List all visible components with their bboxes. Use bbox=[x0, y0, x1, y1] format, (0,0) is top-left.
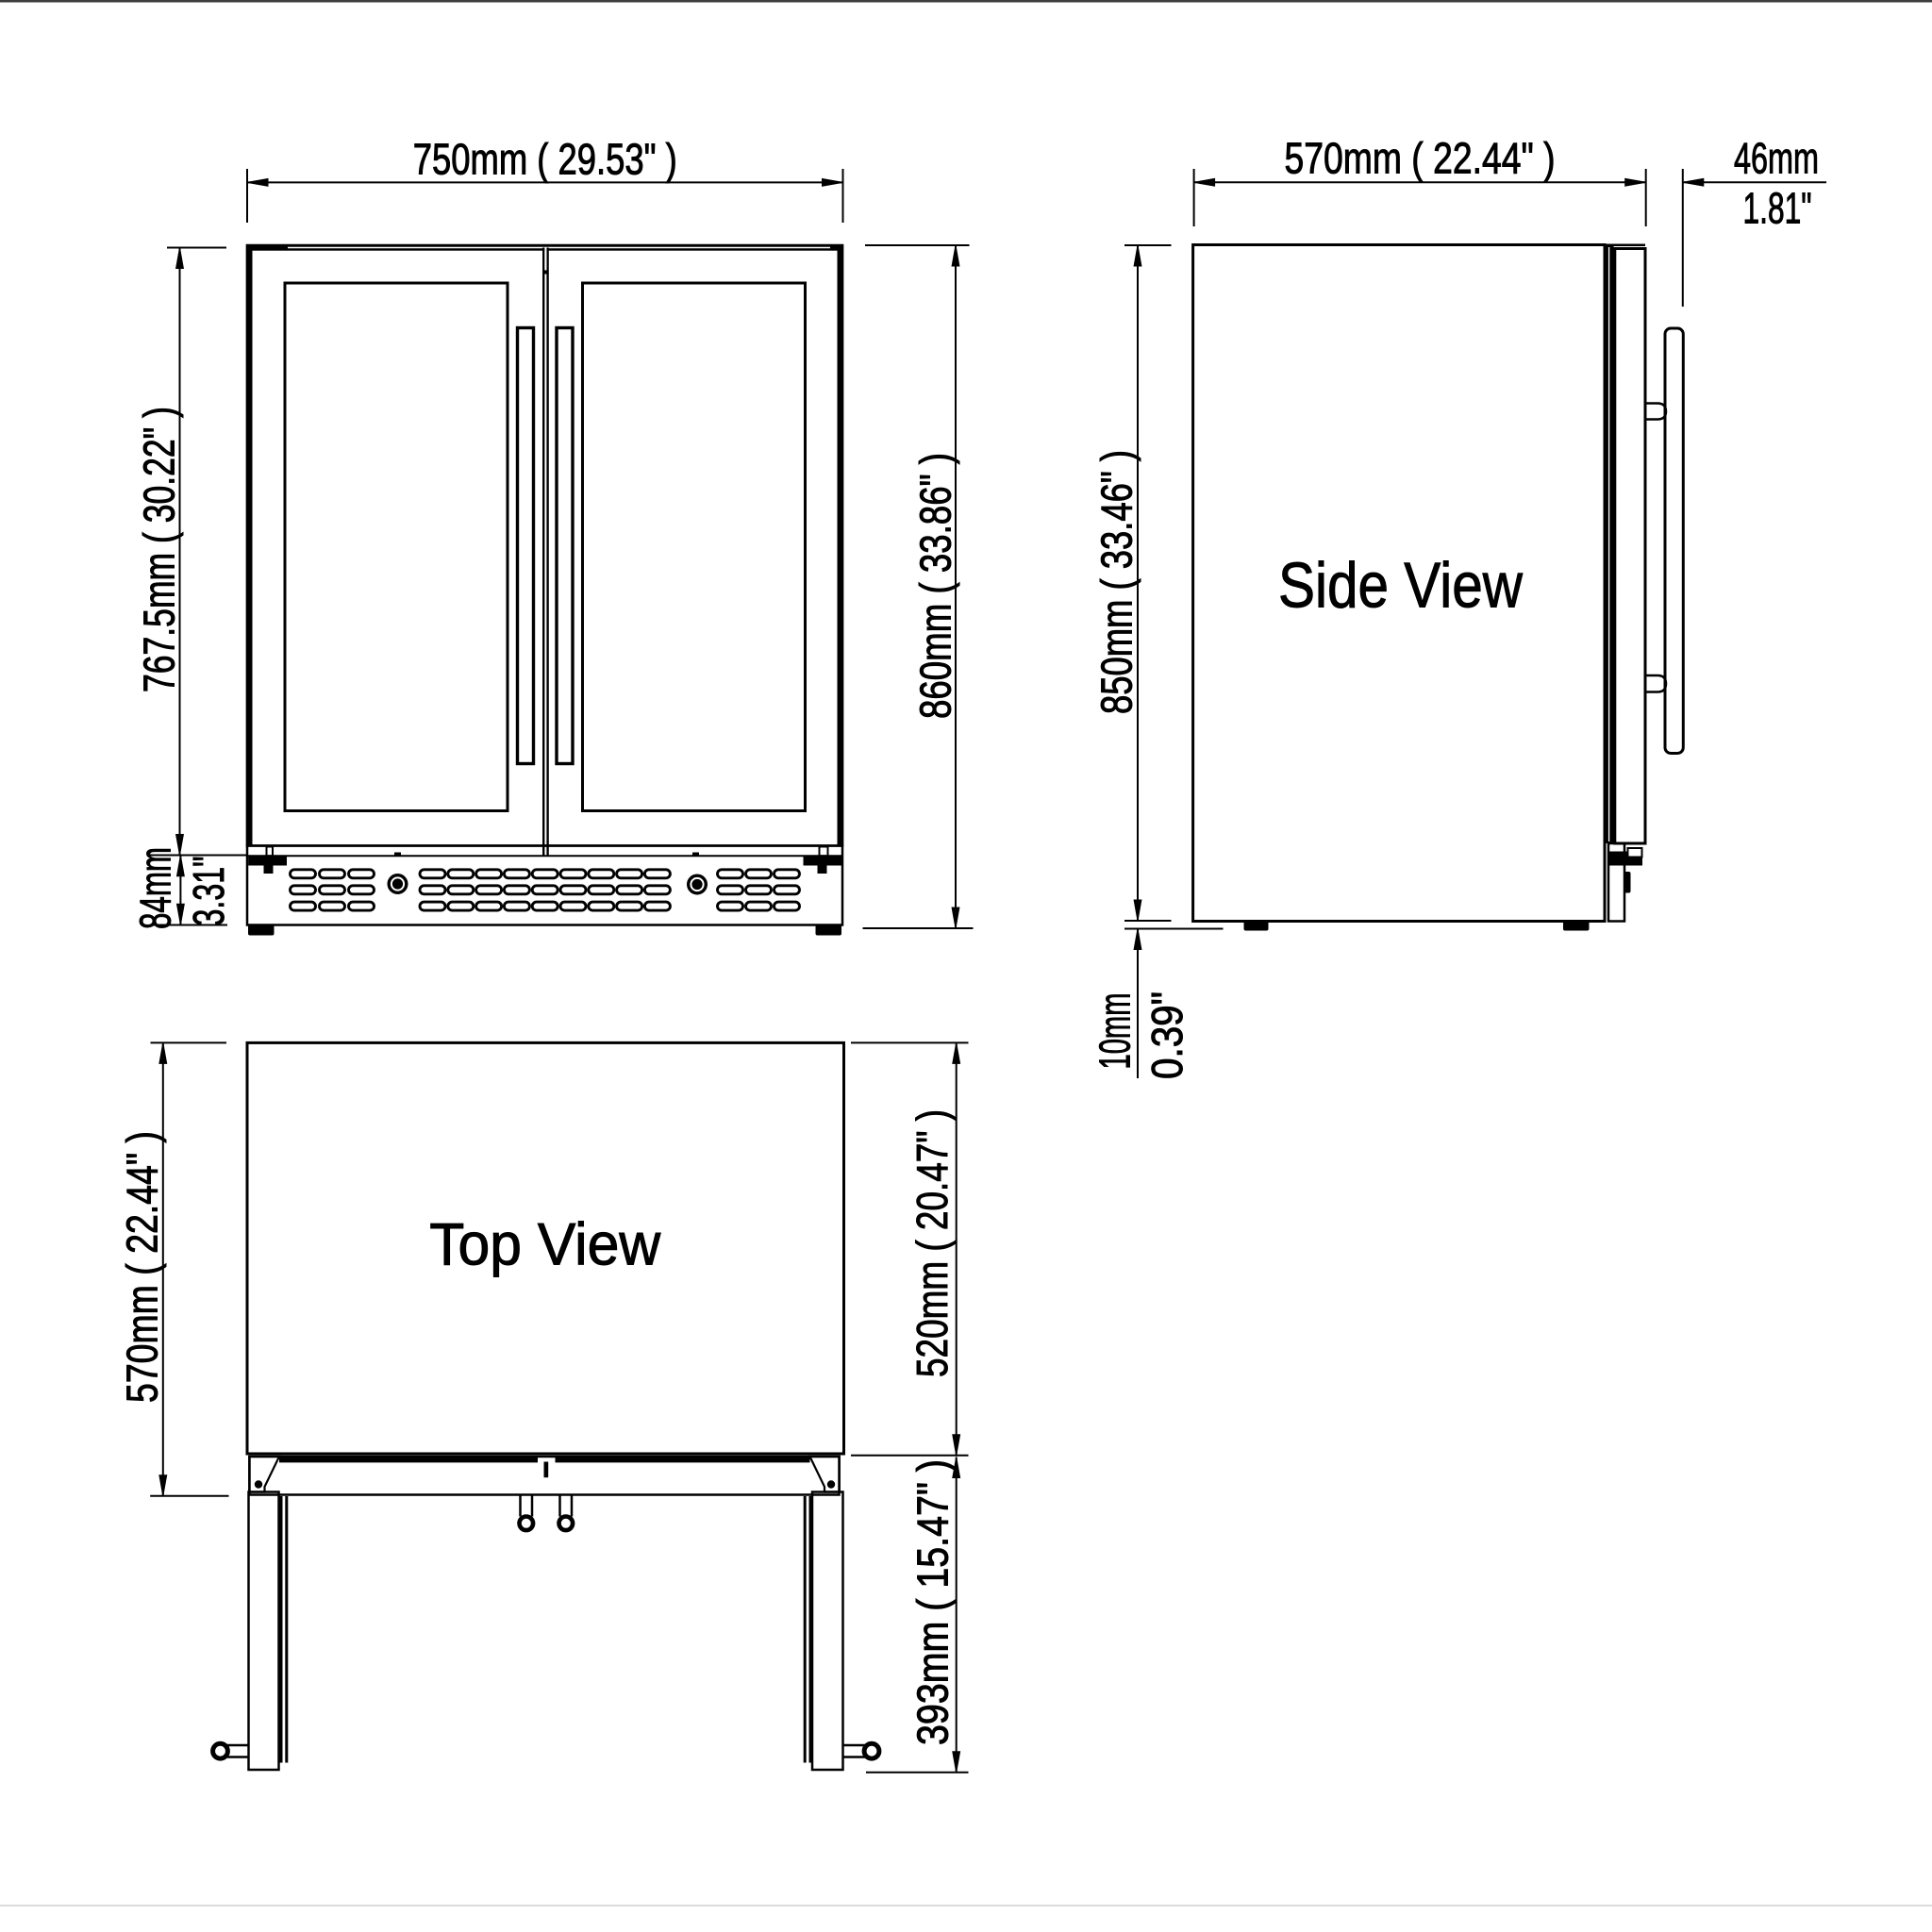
svg-text:10mm: 10mm bbox=[1091, 993, 1140, 1070]
svg-text:767.5mm ( 30.22" ): 767.5mm ( 30.22" ) bbox=[135, 407, 184, 692]
svg-text:3.31": 3.31" bbox=[184, 857, 233, 926]
svg-text:850mm ( 33.46" ): 850mm ( 33.46" ) bbox=[1092, 450, 1141, 714]
svg-text:520mm ( 20.47" ): 520mm ( 20.47" ) bbox=[908, 1109, 957, 1377]
svg-text:750mm ( 29.53" ): 750mm ( 29.53" ) bbox=[413, 135, 677, 184]
svg-text:860mm ( 33.86" ): 860mm ( 33.86" ) bbox=[911, 453, 960, 719]
svg-text:46mm: 46mm bbox=[1734, 133, 1819, 182]
svg-text:570mm ( 22.44" ): 570mm ( 22.44" ) bbox=[1285, 133, 1556, 182]
svg-text:84mm: 84mm bbox=[131, 847, 180, 929]
svg-text:0.39": 0.39" bbox=[1142, 991, 1191, 1079]
svg-text:Side View: Side View bbox=[1278, 550, 1524, 622]
svg-text:570mm ( 22.44" ): 570mm ( 22.44" ) bbox=[118, 1131, 167, 1403]
svg-text:Top View: Top View bbox=[429, 1211, 660, 1277]
svg-text:393mm ( 15.47" ): 393mm ( 15.47" ) bbox=[908, 1459, 958, 1745]
svg-text:1.81": 1.81" bbox=[1743, 184, 1812, 233]
